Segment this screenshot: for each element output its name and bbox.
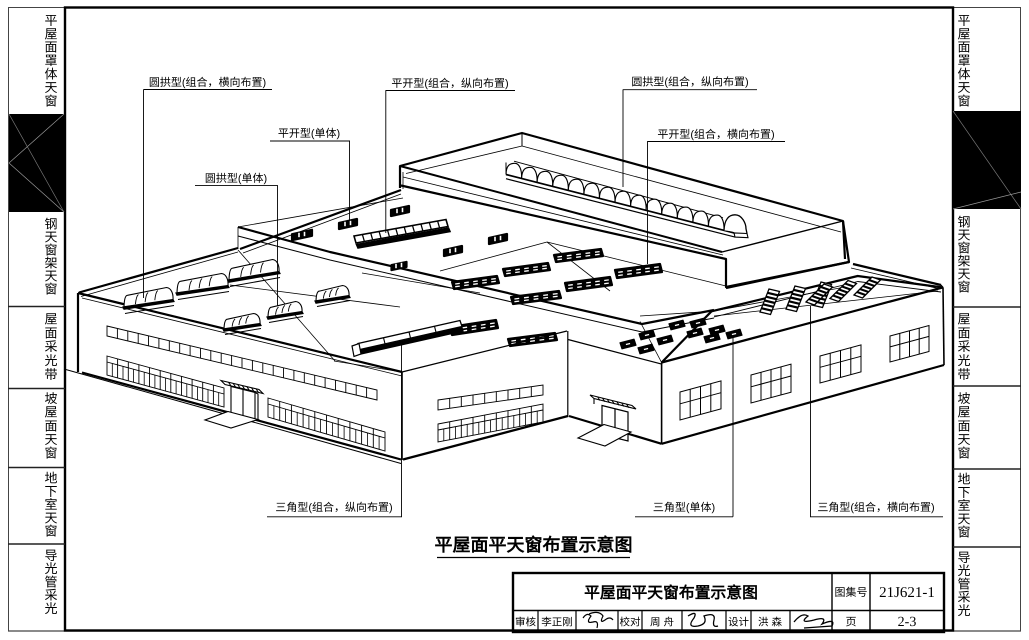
svg-text:审核: 审核 [515,617,536,629]
svg-text:图集号: 图集号 [835,586,868,599]
svg-text:窗: 窗 [44,524,57,539]
svg-text:平开型(组合，纵向布置): 平开型(组合，纵向布置) [391,77,508,90]
svg-text:平屋面平天窗布置示意图: 平屋面平天窗布置示意图 [435,535,633,555]
svg-text:屋: 屋 [957,311,970,326]
svg-text:采: 采 [44,339,57,354]
svg-text:屋: 屋 [44,311,57,326]
svg-text:三角型(组合，横向布置): 三角型(组合，横向布置) [817,501,934,514]
svg-text:校对: 校对 [620,617,641,629]
svg-text:平开型(单体): 平开型(单体) [278,127,340,140]
svg-text:三角型(单体): 三角型(单体) [653,501,715,514]
svg-text:光: 光 [44,601,57,616]
svg-text:光: 光 [957,603,970,618]
svg-text:带: 带 [44,367,57,382]
svg-text:窗: 窗 [957,280,970,295]
svg-text:2-3: 2-3 [898,615,917,630]
svg-text:窗: 窗 [44,446,57,461]
svg-text:圆拱型(组合，纵向布置): 圆拱型(组合，纵向布置) [631,76,748,89]
svg-text:窗: 窗 [957,93,970,108]
svg-text:采: 采 [957,339,970,354]
svg-text:窗: 窗 [44,282,57,297]
svg-text:洪 森: 洪 森 [758,617,782,629]
svg-text:李正刚: 李正刚 [541,617,573,629]
svg-text:面: 面 [44,325,57,340]
svg-text:窗: 窗 [44,93,57,108]
svg-text:光: 光 [44,353,57,368]
svg-text:21J621-1: 21J621-1 [879,585,935,601]
svg-text:面: 面 [957,325,970,340]
svg-text:光: 光 [957,353,970,368]
svg-text:三角型(组合，纵向布置): 三角型(组合，纵向布置) [275,501,392,514]
svg-text:周 舟: 周 舟 [650,617,674,629]
svg-text:设计: 设计 [728,617,749,629]
svg-text:页: 页 [846,617,857,629]
svg-text:窗: 窗 [957,446,970,461]
svg-text:平开型(组合，横向布置): 平开型(组合，横向布置) [657,128,774,141]
svg-text:平屋面平天窗布置示意图: 平屋面平天窗布置示意图 [584,584,758,602]
svg-text:圆拱型(单体): 圆拱型(单体) [205,172,267,185]
svg-text:带: 带 [957,367,970,382]
svg-text:圆拱型(组合，横向布置): 圆拱型(组合，横向布置) [149,76,266,89]
svg-text:窗: 窗 [957,525,970,540]
